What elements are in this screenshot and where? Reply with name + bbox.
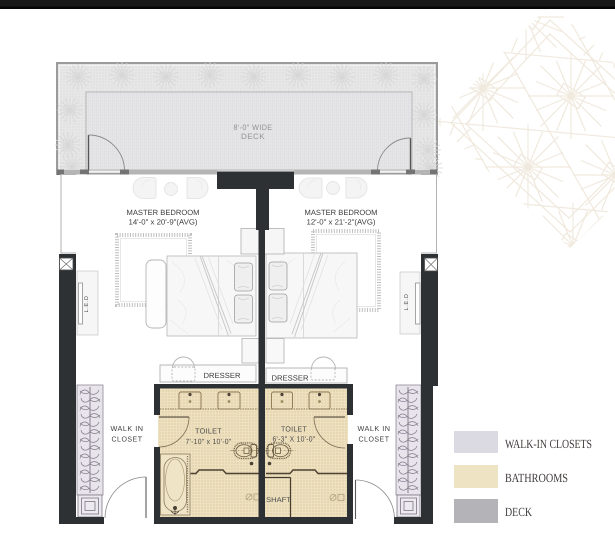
svg-text:14'-0" x 20'-9"(AVG): 14'-0" x 20'-9"(AVG) <box>129 218 198 227</box>
svg-text:TOILET: TOILET <box>281 425 307 434</box>
svg-text:DECK: DECK <box>241 132 265 141</box>
svg-text:CLOSET: CLOSET <box>112 435 143 444</box>
svg-text:8'-0" WIDE: 8'-0" WIDE <box>234 123 273 132</box>
svg-text:6'-3" X 10'-0": 6'-3" X 10'-0" <box>273 435 316 444</box>
svg-text:MASTER BEDROOM: MASTER BEDROOM <box>127 208 200 217</box>
svg-text:7'-10" x 10'-0": 7'-10" x 10'-0" <box>186 437 232 446</box>
svg-text:SHAFT: SHAFT <box>266 497 292 504</box>
svg-text:12'-0" x 21'-2"(AVG): 12'-0" x 21'-2"(AVG) <box>307 218 376 227</box>
svg-text:MASTER BEDROOM: MASTER BEDROOM <box>305 208 378 217</box>
svg-text:DECK: DECK <box>505 505 532 519</box>
svg-text:WALK IN: WALK IN <box>358 424 391 433</box>
svg-text:TOILET: TOILET <box>195 427 222 436</box>
svg-text:DRESSER: DRESSER <box>272 374 310 383</box>
svg-text:BATHROOMS: BATHROOMS <box>505 471 568 485</box>
svg-text:L.E.D: L.E.D <box>84 296 90 313</box>
svg-text:WALK IN: WALK IN <box>111 424 144 433</box>
svg-text:DRESSER: DRESSER <box>204 371 242 380</box>
svg-text:L.E.D: L.E.D <box>404 294 410 311</box>
svg-text:WALK-IN CLOSETS: WALK-IN CLOSETS <box>505 437 592 451</box>
svg-text:CLOSET: CLOSET <box>359 435 390 444</box>
